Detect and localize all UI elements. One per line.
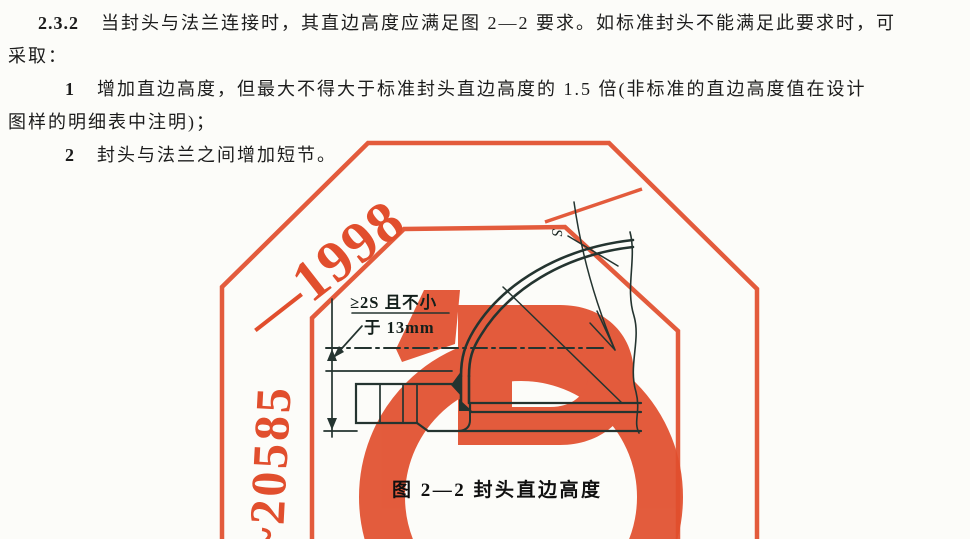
figure-caption: 图 2—2 封头直边高度 (392, 475, 603, 502)
scanned-standard-page: —1998 ~20585 (0, 0, 970, 539)
list-item-number: 2 (65, 145, 75, 165)
paragraph-line-4: 图样的明细表中注明)； (8, 108, 216, 134)
paragraph-line-1: 2.3.2当封头与法兰连接时，其直边高度应满足图 2—2 要求。如标准封头不能满… (38, 9, 896, 35)
dimension-note-line1: ≥2S 且不小 (350, 289, 437, 313)
clause-text: 采取： (8, 46, 68, 66)
flange-bottom-line (417, 423, 641, 431)
dimension-arrow-down (327, 418, 337, 430)
diagonal-pointer (503, 287, 622, 403)
paragraph-line-5: 2封头与法兰之间增加短节。 (65, 141, 337, 167)
head-inner-curve (469, 247, 633, 376)
head-outer-curve (461, 240, 633, 376)
clause-text: 当封头与法兰连接时，其直边高度应满足图 2—2 要求。如标准封头不能满足此要求时… (101, 13, 896, 33)
thickness-label: S (547, 228, 564, 236)
paragraph-line-3: 1增加直边高度，但最大不得大于标准封头直边高度的 1.5 倍(非标准的直边高度值… (65, 75, 867, 101)
dimension-note-line2: 于 13mm (364, 314, 435, 338)
head-straight-edge (461, 376, 469, 403)
paragraph-line-2: 采取： (8, 42, 68, 68)
list-item-number: 1 (65, 79, 75, 99)
hub-notch (459, 412, 470, 431)
flange-outline (356, 384, 453, 423)
flange-inner-lines (380, 384, 417, 423)
list-item-text: 增加直边高度，但最大不得大于标准封头直边高度的 1.5 倍(非标准的直边高度值在… (97, 79, 867, 99)
list-item-text: 图样的明细表中注明)； (8, 112, 216, 132)
clause-number: 2.3.2 (38, 13, 79, 33)
list-item-text: 封头与法兰之间增加短节。 (97, 145, 337, 165)
shell-lines (470, 403, 641, 412)
